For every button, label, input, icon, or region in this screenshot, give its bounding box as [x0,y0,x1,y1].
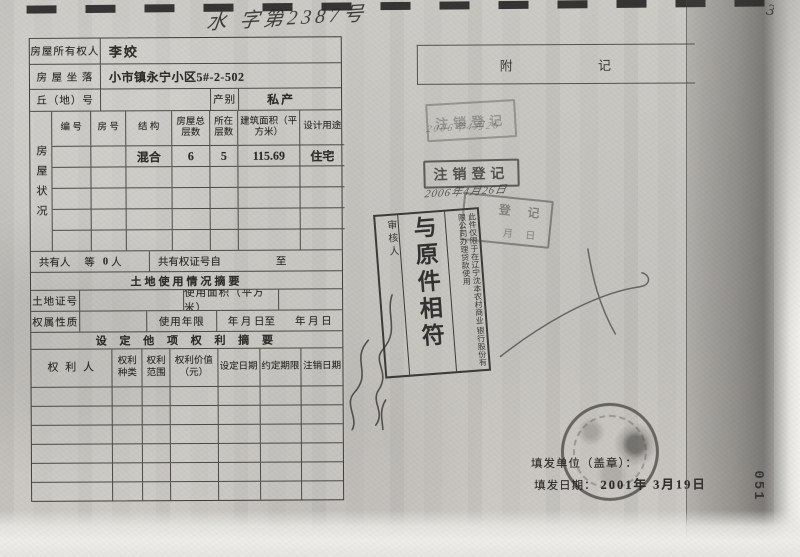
plot-label: 丘（地）号 [30,90,100,111]
empty-cell [301,443,343,461]
empty-cell [170,463,218,481]
empty-cell [142,463,170,481]
page-number: 051 [750,466,766,506]
land-title-row: 土地使用情况摘要 [31,270,342,290]
empty-cell [170,482,218,500]
empty-cell [53,231,91,251]
empty-cell [112,463,142,481]
empty-cell [259,425,301,443]
status-empty-row [53,207,345,230]
rights-col-term: 约定期限 [259,349,301,386]
empty-cell [238,230,300,250]
co-owner-count: 0 [103,256,108,267]
issue-date-label: 填发日期： [534,480,597,492]
empty-cell [172,188,210,208]
empty-cell [142,387,170,405]
co-owner-cert-cell: 共有权证号自 至 [149,250,342,271]
rights-header-row: 权 利 人 权利种类 权利范围 权利价值（元） 设定日期 约定期限 注销日期 [31,347,342,387]
empty-cell [237,167,299,187]
owner-value: 李姣 [100,37,341,63]
empty-cell [52,168,90,188]
document-sheet: 水 字第2387号 3 房屋所有权人 李姣 房 屋 坐 落 小市镇永宁小区5#-… [0,0,800,557]
empty-cell [32,407,113,425]
rights-section-title: 设 定 他 项 权 利 摘 要 [31,331,342,349]
owner-label: 房屋所有权人 [30,39,100,64]
empty-cell [217,387,259,405]
owner-row: 房屋所有权人 李姣 [30,37,341,64]
empty-cell [301,424,343,442]
co-owner-prefix: 等 [84,254,95,269]
location-label: 房 屋 坐 落 [30,65,100,89]
scan-right-edge [774,0,800,557]
empty-cell [301,481,343,499]
land-cert-row: 土地证号 使用面积（平方米） [31,288,342,311]
tenure-row: 权属性质 使用年限 年 月 日至 年 月 日 [31,309,342,332]
cert-to-label: 至 [276,253,287,268]
scan-bottom-edge [0,510,800,557]
empty-cell [170,387,218,405]
empty-cell [171,167,209,187]
status-header-row: 编 号 房 号 结 构 房屋总层数 所在层数 建筑面积（平方米） 设计用途 [52,110,344,146]
land-cert-label: 土地证号 [31,291,79,311]
rights-col-scope: 权利范围 [142,349,170,386]
use-value: 住宅 [299,145,344,165]
empty-cell [260,482,302,500]
floor-value: 5 [209,146,237,166]
partial-stamp-line2: 月 日 [502,224,549,243]
rights-title-row: 设 定 他 项 权 利 摘 要 [31,330,342,349]
empty-cell [79,311,146,331]
empty-cell [278,289,342,309]
status-data-row: 混合 6 5 115.69 住宅 [52,144,344,167]
rights-col-cancel-date: 注销日期 [301,348,343,385]
empty-cell [126,209,172,229]
rights-empty-row [32,442,343,463]
empty-cell [210,209,238,229]
property-table: 房屋所有权人 李姣 房 屋 坐 落 小市镇永宁小区5#-2-502 丘（地）号 … [29,36,344,502]
land-area-label: 使用面积（平方米） [183,290,278,310]
empty-cell [218,444,260,462]
empty-cell [53,189,91,209]
empty-cell [172,230,210,250]
empty-cell [259,444,301,462]
co-owner-row: 共有人 等 0 人 共有权证号自 至 [31,249,342,272]
status-empty-row [53,228,345,251]
empty-cell [32,426,113,444]
col-structure: 结 构 [125,111,171,145]
empty-cell [142,406,170,424]
land-section-title: 土地使用情况摘要 [31,271,342,290]
rights-empty-row [32,423,343,444]
empty-cell [79,290,183,311]
col-number: 编 号 [52,112,90,146]
col-total-floors: 房屋总层数 [171,111,209,145]
empty-cell [259,463,301,481]
perforation-dashes [27,0,772,14]
empty-cell [112,444,142,462]
rights-col-value: 权利价值（元） [169,349,217,386]
empty-cell [259,406,301,424]
empty-cell [112,406,142,424]
notes-title: 附 记 [500,54,613,74]
rights-col-set-date: 设定日期 [217,349,259,386]
empty-cell [90,167,125,187]
rights-col-holder: 权 利 人 [31,350,112,387]
partial-stamp-line1: 登 记 [498,201,551,223]
notes-section: 附 记 [417,43,695,84]
house-status-table: 编 号 房 号 结 构 房屋总层数 所在层数 建筑面积（平方米） 设计用途 混合… [51,110,345,251]
location-value: 小市镇永宁小区5#-2-502 [100,63,341,88]
empty-cell [210,230,238,250]
empty-cell [217,406,259,424]
rights-col-kind: 权利种类 [112,349,142,386]
empty-cell [259,387,301,405]
empty-cell [32,388,113,406]
empty-cell [301,386,343,404]
empty-cell [142,425,170,443]
empty-cell [172,209,210,229]
status-empty-row [53,186,345,209]
category-value: 私产 [238,88,341,110]
empty-cell [112,387,142,405]
structure-value: 混合 [125,146,171,166]
empty-cell [112,425,142,443]
co-owner-label: 共有人 [39,254,71,269]
area-value: 115.69 [237,146,299,166]
term-to: 年 月 日 [295,313,332,328]
empty-cell [218,482,260,500]
empty-cell [238,209,300,229]
plot-row: 丘（地）号 产别 私产 [30,87,341,111]
empty-cell [126,188,172,208]
term-label: 使用年限 [146,311,216,331]
co-owner-cell: 共有人 等 0 人 [31,251,149,272]
handwritten-file-number: 水 字第2387号 [205,0,369,35]
house-status-side-label: 房屋状况 [30,112,52,251]
empty-cell [90,146,125,166]
empty-cell [32,445,113,463]
matches-original-stamp: 审核人 与原件相符 此件仅限于在辽宁沈本农村商业 银行股份有限公司办理贷款使用 [373,207,491,378]
empty-cell [299,166,344,186]
empty-cell [218,463,260,481]
empty-cell [170,406,218,424]
empty-cell [170,425,218,443]
empty-cell [91,209,126,229]
empty-cell [301,405,343,423]
empty-cell [209,167,237,187]
term-from: 年 月 日至 [228,313,275,328]
location-row: 房 屋 坐 落 小市镇永宁小区5#-2-502 [30,62,341,89]
rights-empty-row [32,480,343,501]
col-room: 房 号 [90,111,125,145]
empty-cell [113,482,143,500]
house-status-block: 房屋状况 编 号 房 号 结 构 房屋总层数 所在层数 建筑面积（平方米） 设计… [30,109,342,251]
empty-cell [125,167,171,187]
empty-cell [301,462,343,480]
col-area: 建筑面积（平方米） [237,111,299,145]
empty-cell [100,89,210,111]
rights-empty-row [32,404,343,425]
issue-unit-label: 填发单位（盖章）： [531,455,638,472]
empty-cell [52,147,90,167]
empty-cell [300,208,345,228]
co-owner-suffix: 人 [111,254,122,269]
rights-empty-row [32,385,343,406]
status-empty-row [52,165,344,188]
empty-cell [238,188,300,208]
page-fold-shadow [686,0,777,545]
empty-cell [91,188,126,208]
cert-from-label: 共有权证号自 [158,253,221,268]
term-dates-cell: 年 月 日至 年 月 日 [216,310,342,331]
issue-date-line: 填发日期： 2001年 3月19日 [534,473,707,493]
empty-cell [300,229,345,249]
empty-cell [300,187,345,207]
empty-cell [126,230,172,250]
scanned-property-registration-form: 水 字第2387号 3 房屋所有权人 李姣 房 屋 坐 落 小市镇永宁小区5#-… [0,0,800,557]
empty-cell [218,425,260,443]
tenure-label: 权属性质 [31,312,79,332]
empty-cell [142,444,170,462]
empty-cell [32,464,113,482]
empty-cell [170,444,218,462]
total-floors-value: 6 [171,146,209,166]
col-floor: 所在层数 [209,111,237,145]
rights-empty-row [32,461,343,482]
category-label: 产别 [210,89,238,110]
empty-cell [142,482,170,500]
empty-cell [32,483,113,501]
empty-cell [210,188,238,208]
empty-cell [91,230,126,250]
col-use: 设计用途 [299,110,344,144]
empty-cell [53,210,91,230]
